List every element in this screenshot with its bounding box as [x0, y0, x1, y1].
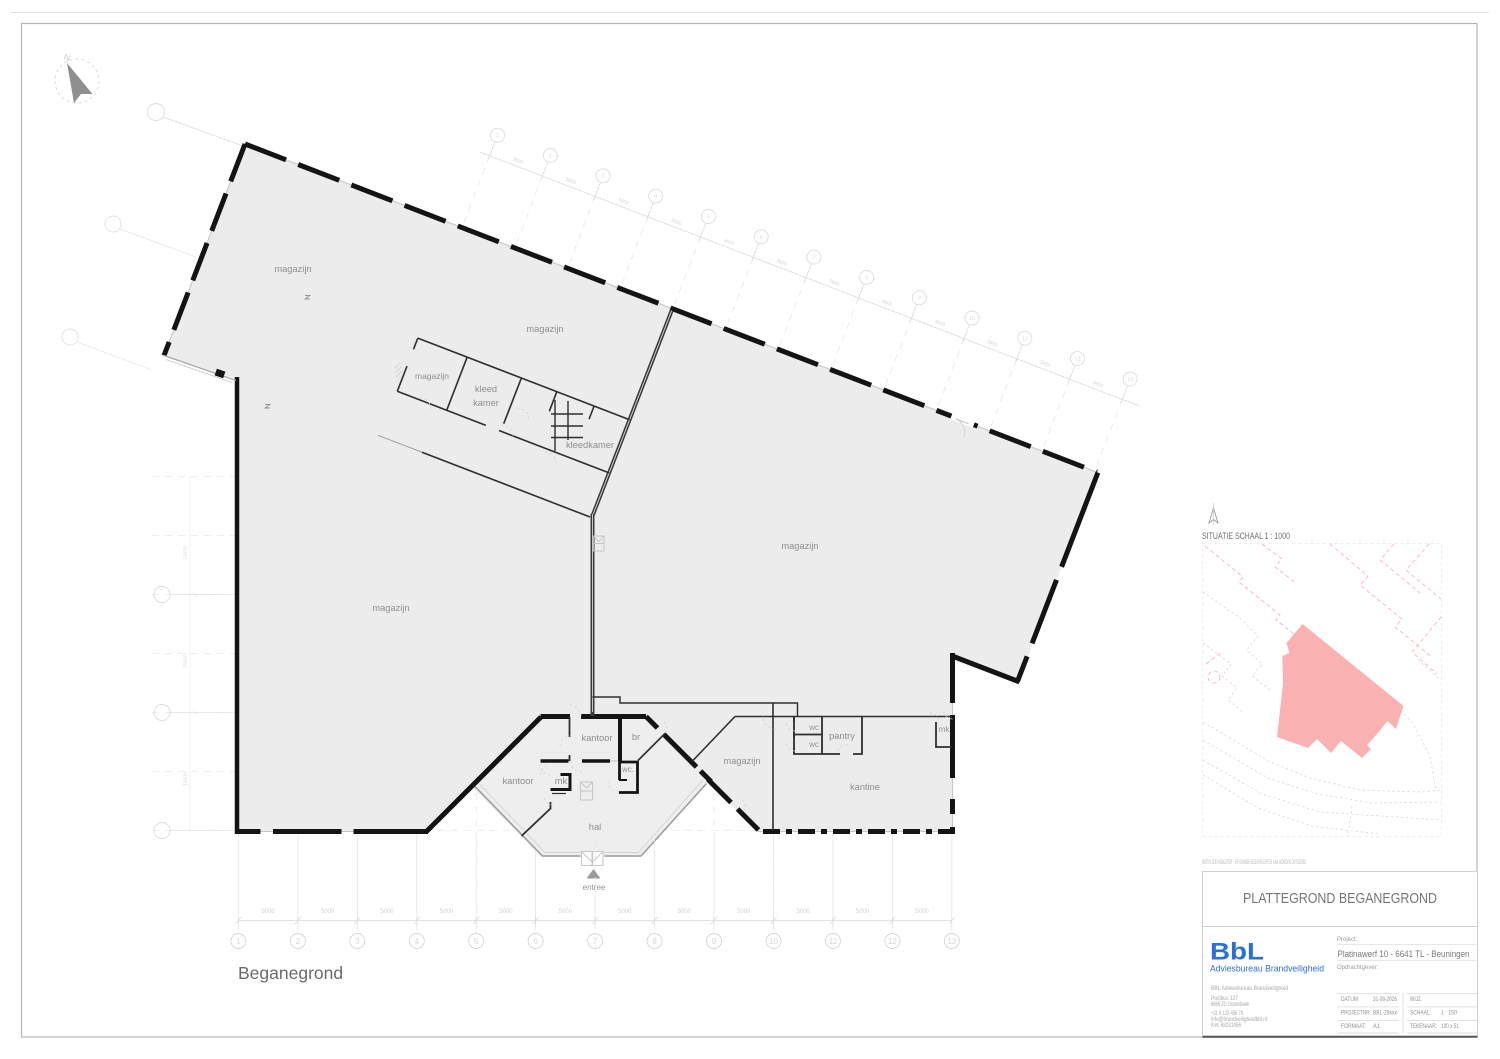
svg-text:6: 6	[760, 235, 763, 241]
svg-text:magazijn: magazijn	[781, 541, 818, 551]
svg-text:9: 9	[918, 296, 921, 302]
svg-text:1: 1	[496, 133, 499, 139]
svg-text:10000: 10000	[183, 546, 189, 560]
svg-text:5000: 5000	[499, 909, 513, 915]
svg-text:br: br	[632, 732, 640, 742]
svg-text:5000: 5000	[440, 909, 454, 915]
svg-text:6666 ZG Oosterbeek: 6666 ZG Oosterbeek	[1211, 1002, 1250, 1008]
svg-text:DATUM: DATUM	[1341, 997, 1358, 1003]
svg-text:5000: 5000	[737, 909, 751, 915]
svg-text:11: 11	[1022, 336, 1028, 342]
svg-text:magazijn: magazijn	[723, 756, 760, 766]
svg-text:5: 5	[474, 937, 479, 946]
svg-text:FORMAAT:: FORMAAT:	[1341, 1024, 1366, 1030]
svg-text:BBL Adviesbureau Brandveilighe: BBL Adviesbureau Brandveiligheid	[1211, 986, 1288, 992]
svg-text:3: 3	[601, 174, 604, 180]
svg-text:5000: 5000	[797, 909, 811, 915]
svg-text:entree: entree	[583, 883, 606, 892]
svg-text:5000: 5000	[380, 909, 394, 915]
svg-text:5: 5	[707, 215, 710, 221]
svg-text:pantry: pantry	[829, 731, 855, 741]
svg-text:11: 11	[829, 937, 838, 946]
svg-text:12: 12	[888, 937, 897, 946]
svg-text:7: 7	[593, 937, 598, 946]
svg-text:BBL-29xxx: BBL-29xxx	[1373, 1011, 1397, 1017]
svg-text:KvK 68231456: KvK 68231456	[1211, 1023, 1241, 1029]
svg-text:5000: 5000	[618, 909, 632, 915]
svg-text:8: 8	[865, 275, 868, 281]
svg-text:13: 13	[947, 937, 956, 946]
svg-text:5000: 5000	[321, 909, 335, 915]
svg-text:1 : 150: 1 : 150	[1441, 1011, 1458, 1017]
svg-text:5000: 5000	[856, 909, 870, 915]
svg-text:kantoor: kantoor	[502, 776, 533, 786]
svg-text:mk: mk	[555, 776, 568, 786]
svg-text:2: 2	[296, 937, 301, 946]
svg-text:10000: 10000	[183, 654, 189, 668]
svg-text:MATEN ZIJN INDICATIEF - ER KUN: MATEN ZIJN INDICATIEF - ER KUNNEN GEEN R…	[1202, 860, 1306, 866]
svg-text:A1: A1	[1373, 1024, 1381, 1030]
svg-text:10: 10	[969, 316, 975, 322]
svg-text:wc: wc	[808, 723, 819, 732]
svg-text:9: 9	[712, 937, 717, 946]
svg-text:magazijn: magazijn	[415, 371, 449, 381]
svg-text:kleedkamer: kleedkamer	[566, 440, 614, 450]
svg-text:10000: 10000	[183, 772, 189, 786]
svg-text:kleed: kleed	[475, 384, 497, 394]
svg-text:10: 10	[769, 937, 778, 946]
svg-text:kantine: kantine	[850, 782, 880, 792]
svg-text:5000: 5000	[678, 909, 692, 915]
svg-text:5000: 5000	[559, 909, 573, 915]
svg-text:Project:: Project:	[1337, 937, 1358, 943]
svg-text:7: 7	[812, 255, 815, 261]
svg-text:5000: 5000	[915, 909, 929, 915]
svg-text:4: 4	[415, 937, 420, 946]
svg-text:wc: wc	[808, 740, 819, 749]
svg-text:3: 3	[355, 937, 360, 946]
svg-text:PLATTEGROND BEGANEGROND: PLATTEGROND BEGANEGROND	[1243, 890, 1437, 907]
svg-text:TEKENAAR:: TEKENAAR:	[1410, 1024, 1437, 1030]
svg-text:wc.: wc.	[621, 765, 634, 774]
svg-text:Platinawerf 10 - 6641 TL - Beu: Platinawerf 10 - 6641 TL - Beuningen	[1338, 949, 1470, 960]
svg-text:PROJECTNR:: PROJECTNR:	[1341, 1011, 1371, 1017]
svg-text:12: 12	[1074, 357, 1080, 363]
svg-text:Beganegrond: Beganegrond	[238, 963, 343, 983]
svg-text:hal: hal	[589, 822, 601, 832]
svg-text:4: 4	[654, 194, 657, 200]
svg-text:5000: 5000	[261, 909, 275, 915]
svg-text:Opdrachtgever:: Opdrachtgever:	[1337, 965, 1379, 971]
svg-text:kamer: kamer	[473, 398, 499, 408]
svg-text:100 x 51: 100 x 51	[1441, 1024, 1460, 1030]
svg-text:8: 8	[652, 937, 657, 946]
svg-text:Adviesbureau Brandveiligheid: Adviesbureau Brandveiligheid	[1210, 964, 1324, 974]
svg-text:BbL: BbL	[1210, 939, 1264, 966]
svg-text:6: 6	[533, 937, 538, 946]
svg-text:SITUATIE SCHAAL 1 : 1000: SITUATIE SCHAAL 1 : 1000	[1202, 531, 1290, 541]
svg-text:magazijn: magazijn	[274, 264, 311, 274]
svg-text:13: 13	[1127, 377, 1133, 383]
svg-text:mk: mk	[939, 725, 951, 734]
svg-text:WIJZ.: WIJZ.	[1410, 997, 1422, 1003]
svg-text:2: 2	[549, 154, 552, 160]
svg-text:SCHAAL:: SCHAAL:	[1410, 1011, 1431, 1017]
svg-text:kantoor: kantoor	[581, 733, 612, 743]
svg-text:magazijn: magazijn	[526, 324, 563, 334]
svg-text:1: 1	[236, 937, 241, 946]
svg-text:magazijn: magazijn	[372, 603, 409, 613]
svg-text:31-08-2026: 31-08-2026	[1373, 997, 1398, 1003]
